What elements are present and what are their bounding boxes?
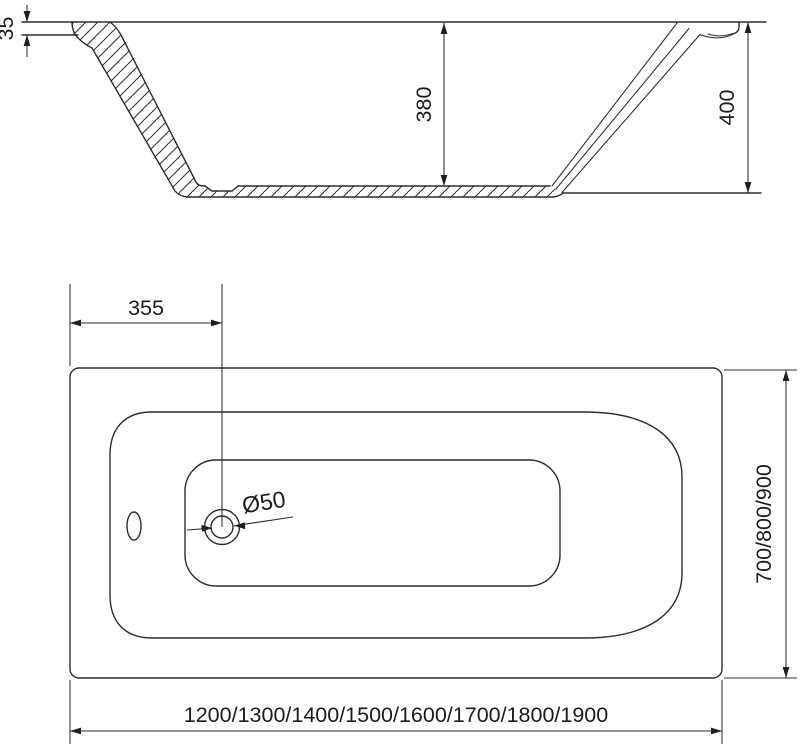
dim-inner-depth-label: 380: [412, 87, 436, 123]
dim-overall-height-label: 400: [715, 90, 739, 126]
plan-view: 355 Ø50 700/800/900 1200/1300/1400/1: [70, 284, 797, 744]
right-wall-line-inner: [552, 23, 677, 186]
section-view: 35 380 400: [0, 5, 766, 197]
tub-shell-hatch: [72, 22, 563, 197]
right-wall-line-mid: [556, 29, 689, 190]
dim-drain-diameter-label: Ø50: [240, 486, 287, 518]
dim-length-options: 1200/1300/1400/1500/1600/1700/1800/1900: [70, 680, 722, 744]
overflow-hole: [127, 512, 141, 540]
dim-overall-height: 400: [715, 22, 751, 193]
dim-drain-diameter: Ø50: [187, 486, 293, 532]
dim-inner-depth: 380: [412, 23, 447, 186]
dim-width-options: 700/800/900: [724, 370, 797, 678]
bathtub-technical-drawing: 35 380 400: [0, 0, 800, 748]
dim-drain-offset: 355: [70, 284, 222, 366]
tub-floor-edge: [185, 460, 560, 586]
dim-width-options-label: 700/800/900: [752, 464, 776, 584]
right-rim-curl-outer: [700, 32, 737, 38]
right-wall-line-outer: [562, 35, 700, 193]
tub-outer-edge: [70, 368, 722, 678]
dim-rim-thickness: 35: [0, 5, 30, 57]
tub-inner-rim-edge: [110, 412, 682, 638]
dim-length-options-label: 1200/1300/1400/1500/1600/1700/1800/1900: [184, 703, 608, 727]
dim-drain-offset-label: 355: [128, 296, 164, 320]
dim-rim-thickness-label: 35: [0, 17, 18, 41]
